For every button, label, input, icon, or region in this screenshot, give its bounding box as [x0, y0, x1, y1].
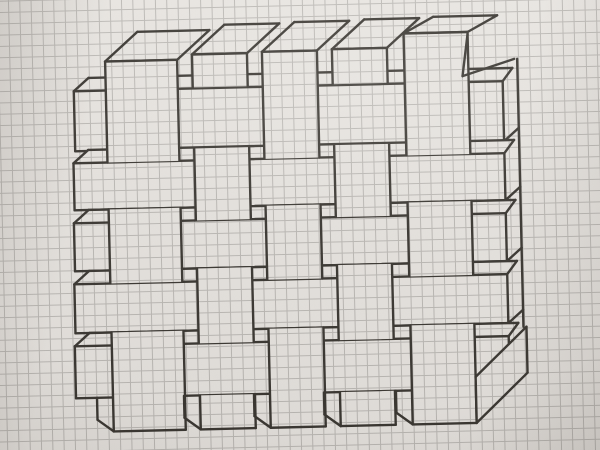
photo-of-graph-paper-weave-drawing: [0, 0, 600, 450]
weave-drawing-canvas: [0, 0, 600, 450]
photo-grain: [0, 0, 600, 450]
